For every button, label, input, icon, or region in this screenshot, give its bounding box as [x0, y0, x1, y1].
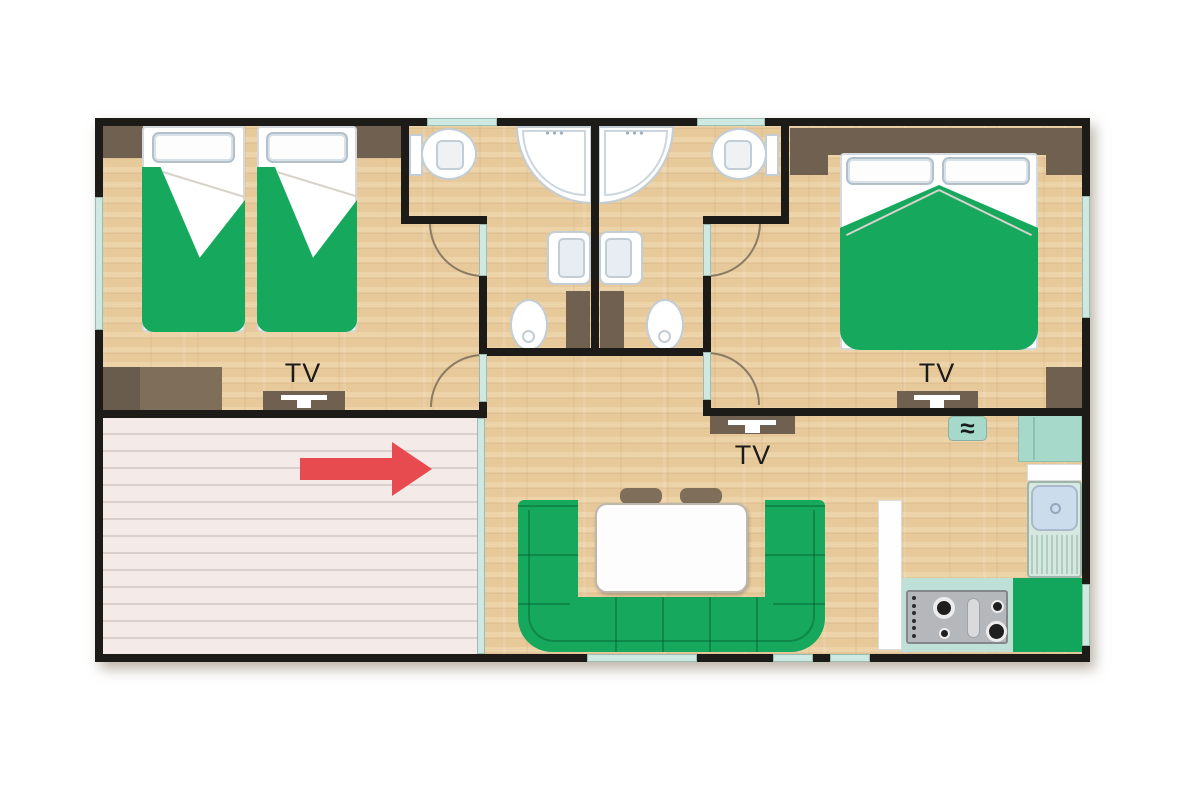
column-bath-left — [566, 291, 590, 349]
wall-bedroomright-living — [703, 408, 1090, 416]
wall-bath-bottom — [479, 348, 711, 356]
door-bedroom-left — [479, 354, 487, 402]
kitchen-counter-white — [1027, 464, 1082, 481]
washbasin-right-bowl — [605, 238, 632, 278]
window-kitchen-bottom — [830, 654, 870, 662]
wall-bath-left-lower — [479, 276, 487, 352]
water-heater: ≈ — [948, 416, 987, 441]
red-arrow-shaft — [300, 458, 393, 480]
cabinet-bedroomleft-dark — [103, 367, 140, 410]
bidet-left — [510, 299, 548, 351]
burner-large-right — [986, 621, 1007, 642]
tv-icon-bedroom-right-base — [930, 400, 944, 408]
door-bath-right — [703, 224, 711, 276]
red-arrow-head — [392, 442, 432, 496]
floorplan-image: TV TV TV ≈ — [0, 0, 1200, 800]
kitchen-sink-drain — [1050, 503, 1061, 514]
wall-bath-center — [591, 126, 599, 356]
window-bedroom-right — [1082, 196, 1090, 318]
kitchen-tall-cabinet — [878, 500, 902, 650]
shower-left-head-icon — [544, 131, 566, 135]
headboard-bedroomright-bar — [790, 128, 1085, 155]
burner-small-right — [991, 600, 1004, 613]
tv-label-living: TV — [723, 440, 783, 470]
window-bedroom-left — [95, 197, 103, 330]
single-bed-2-blanket — [257, 167, 357, 332]
kitchen-drainboard — [1031, 535, 1078, 574]
wall-bedroomleft-terrace — [95, 410, 487, 418]
wall-stub-door-left — [479, 402, 487, 412]
tv-label-bedroom-left: TV — [273, 358, 333, 388]
bidet-right-drain — [658, 330, 671, 343]
tv-icon-living-base — [745, 425, 760, 433]
window-top-bath-right — [697, 118, 765, 126]
cooktop-controls — [912, 596, 918, 638]
cooktop-center-strip — [967, 598, 980, 638]
single-bed-1-blanket — [142, 167, 245, 332]
window-top-bath-left — [427, 118, 497, 126]
wall-bath-right-lower — [703, 276, 711, 352]
toilet-left-seat — [436, 140, 464, 170]
burner-small-left — [939, 628, 950, 639]
window-kitchen-right — [1082, 584, 1090, 646]
fridge-door-line — [1033, 417, 1035, 460]
tv-label-bedroom-right: TV — [907, 358, 967, 388]
double-bed-pillow-right — [942, 157, 1030, 185]
tv-icon-bedroom-left-base — [297, 400, 311, 408]
window-living-bottom-1 — [587, 654, 697, 662]
cabinet-bedroomleft-light — [140, 367, 222, 410]
chair-1 — [620, 488, 662, 504]
column-bath-right — [600, 291, 624, 349]
single-bed-1-pillow — [152, 132, 235, 163]
wall-bath-right-outer — [781, 126, 789, 222]
door-bedroom-right — [703, 352, 711, 400]
cabinet-bedroomright — [1046, 367, 1085, 410]
wall-bath-left-top — [401, 216, 487, 224]
shelf-bedroomleft-topright — [352, 126, 401, 158]
dining-table — [595, 503, 748, 593]
bidet-right — [646, 299, 684, 351]
burner-large-left — [933, 597, 955, 619]
toilet-right-tank — [765, 134, 779, 176]
kitchen-counter-green — [1013, 578, 1082, 652]
wall-stub-door-right — [703, 400, 711, 410]
fridge — [1018, 415, 1082, 462]
terrace-sliding-door — [477, 418, 485, 654]
toilet-right-seat — [724, 140, 752, 170]
single-bed-2-pillow — [266, 132, 348, 163]
washbasin-left-bowl — [558, 238, 585, 278]
wall-bath-right-top — [703, 216, 789, 224]
wall-outer-top — [95, 118, 1090, 126]
headboard-bedroomright-right — [1046, 128, 1085, 175]
bidet-left-drain — [522, 330, 535, 343]
shelf-bedroomleft-topleft — [103, 126, 143, 158]
window-living-bottom-2 — [773, 654, 813, 662]
chair-2 — [680, 488, 722, 504]
headboard-bedroomright-left — [790, 128, 828, 175]
shower-right-head-icon — [624, 131, 646, 135]
double-bed-pillow-left — [846, 157, 934, 185]
double-bed-blanket — [840, 185, 1038, 350]
door-bath-left — [479, 224, 487, 276]
wall-bath-left-outer — [401, 126, 409, 222]
